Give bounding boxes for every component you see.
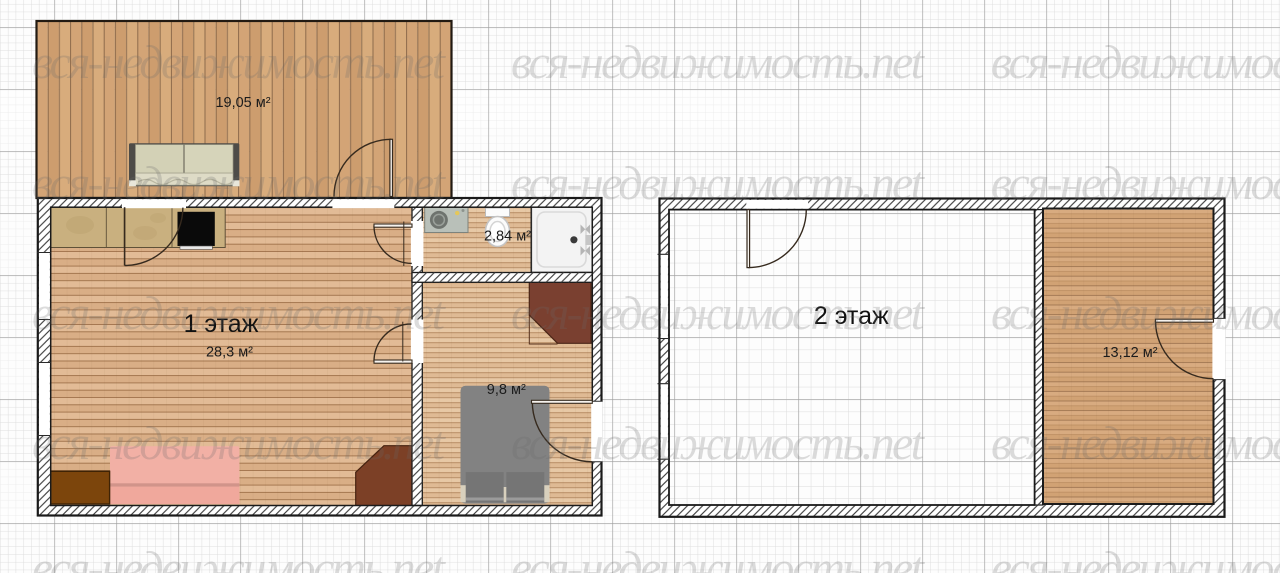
svg-text:вся-недвижимость.net: вся-недвижимость.net — [32, 157, 447, 210]
svg-text:28,3 м²: 28,3 м² — [206, 345, 253, 361]
svg-text:2,84 м²: 2,84 м² — [484, 229, 531, 245]
svg-text:вся-недвижимость.net: вся-недвижимость.net — [511, 417, 926, 470]
svg-text:вся-недвижимость.net: вся-недвижимость.net — [991, 417, 1280, 470]
svg-text:вся-недвижимость.net: вся-недвижимость.net — [991, 157, 1280, 210]
svg-text:вся-недвижимость.net: вся-недвижимость.net — [511, 36, 926, 89]
svg-text:вся-недвижимость.net: вся-недвижимость.net — [32, 417, 447, 470]
svg-text:вся-недвижимость.net: вся-недвижимость.net — [991, 287, 1280, 340]
svg-text:вся-недвижимость.net: вся-недвижимость.net — [511, 287, 926, 340]
svg-text:19,05 м²: 19,05 м² — [215, 95, 270, 111]
svg-text:13,12 м²: 13,12 м² — [1102, 345, 1157, 361]
svg-text:вся-недвижимость.net: вся-недвижимость.net — [32, 287, 447, 340]
svg-text:вся-недвижимость.net: вся-недвижимость.net — [991, 542, 1280, 573]
svg-text:вся-недвижимость.net: вся-недвижимость.net — [991, 36, 1280, 89]
svg-text:вся-недвижимость.net: вся-недвижимость.net — [32, 542, 447, 573]
svg-text:вся-недвижимость.net: вся-недвижимость.net — [32, 36, 447, 89]
svg-text:вся-недвижимость.net: вся-недвижимость.net — [511, 542, 926, 573]
svg-text:9,8 м²: 9,8 м² — [487, 382, 526, 398]
svg-text:вся-недвижимость.net: вся-недвижимость.net — [511, 157, 926, 210]
